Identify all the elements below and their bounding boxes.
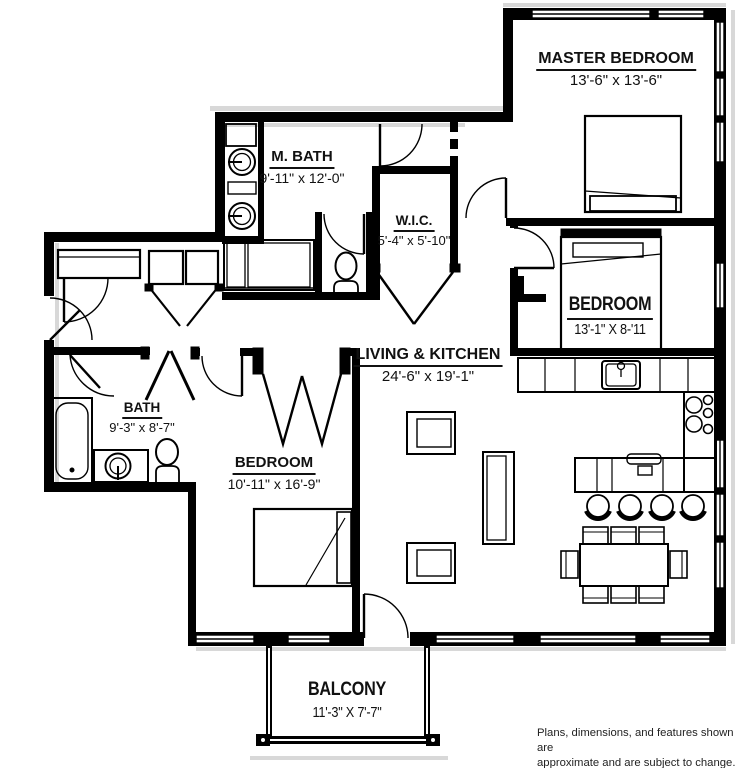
room-name: M. BATH [269, 148, 334, 169]
room-dims: 13'-1" X 8-'11 [567, 321, 653, 339]
room-name: BALCONY [306, 679, 387, 703]
room-name: LIVING & KITCHEN [354, 345, 503, 367]
room-dims: 5'-4" x 5'-10" [378, 233, 451, 249]
room-label-master-bedroom: MASTER BEDROOM 13'-6" x 13'-6" [536, 49, 696, 90]
disclaimer-text: Plans, dimensions, and features shown ar… [537, 726, 742, 768]
room-dims: 9'-11" x 12'-0" [259, 170, 344, 187]
cooktop [686, 396, 713, 434]
master-bed [585, 116, 681, 212]
room-name: BEDROOM [567, 294, 653, 320]
room-dims: 24'-6" x 19'-1" [354, 368, 503, 386]
bedroom-left-bed [254, 509, 352, 586]
bar-stools [586, 495, 705, 519]
disclaimer-line-2: approximate and are subject to change. [537, 756, 742, 768]
room-dims: 9'-3" x 8'-7" [109, 420, 175, 436]
kitchen-sink [602, 361, 640, 389]
kitchen [518, 358, 716, 492]
room-label-living-kitchen: LIVING & KITCHEN 24'-6" x 19'-1" [354, 345, 503, 386]
room-dims: 11'-3" X 7'-7" [306, 704, 387, 722]
room-dims: 10'-11" x 16'-9" [228, 476, 321, 493]
room-label-master-bath: M. BATH 9'-11" x 12'-0" [259, 147, 344, 187]
room-label-balcony: BALCONY 11'-3" X 7'-7" [306, 679, 387, 722]
living-furniture [407, 412, 514, 583]
room-label-bedroom-right: BEDROOM 13'-1" X 8-'11 [567, 294, 653, 339]
dining-set [561, 527, 687, 603]
room-name: W.I.C. [394, 213, 435, 232]
room-name: MASTER BEDROOM [536, 49, 696, 71]
closets [58, 250, 218, 284]
floorplan-page: MASTER BEDROOM 13'-6" x 13'-6" M. BATH 9… [0, 0, 756, 768]
disclaimer-line-1: Plans, dimensions, and features shown ar… [537, 726, 742, 756]
wc-toilet [334, 253, 358, 297]
room-label-wic: W.I.C. 5'-4" x 5'-10" [378, 211, 451, 249]
room-dims: 13'-6" x 13'-6" [536, 72, 696, 90]
room-name: BEDROOM [233, 454, 315, 475]
room-name: BATH [122, 400, 163, 419]
room-label-bedroom-left: BEDROOM 10'-11" x 16'-9" [228, 453, 321, 493]
room-label-bath: BATH 9'-3" x 8'-7" [109, 398, 175, 436]
